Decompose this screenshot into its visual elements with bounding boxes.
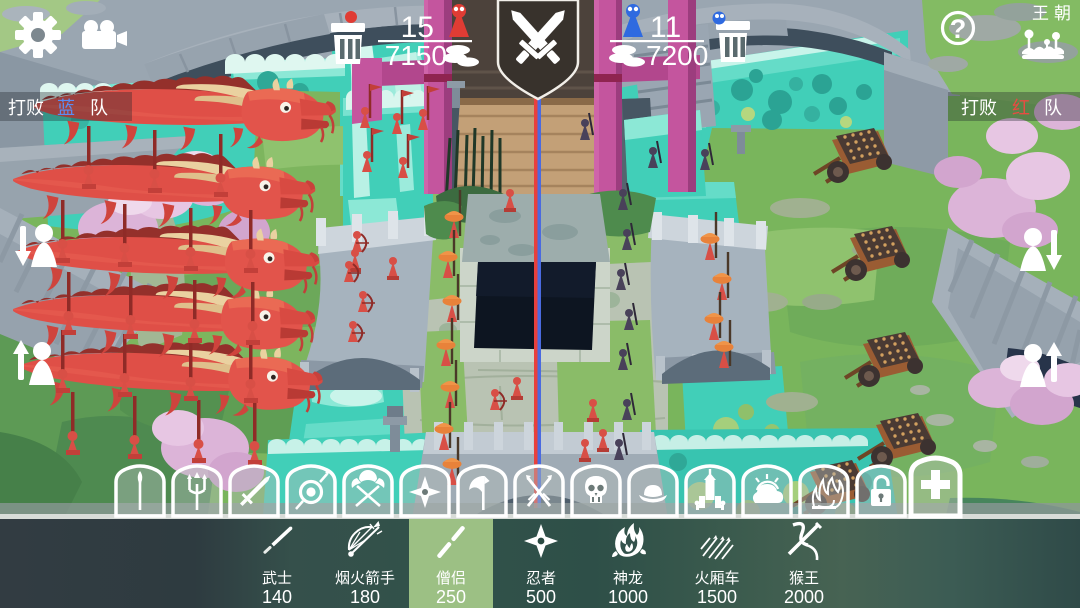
svg-text:140: 140 (262, 587, 292, 607)
svg-text:王朝: 王朝 (1032, 4, 1076, 23)
svg-text:队: 队 (90, 98, 108, 118)
svg-text:烟火箭手: 烟火箭手 (335, 569, 395, 587)
svg-text:2000: 2000 (784, 587, 824, 607)
svg-text:神龙: 神龙 (613, 570, 643, 587)
svg-text:忍者: 忍者 (526, 570, 556, 587)
svg-text:?: ? (950, 14, 967, 44)
svg-text:红: 红 (1012, 98, 1030, 118)
svg-text:打败: 打败 (961, 98, 997, 118)
svg-text:500: 500 (526, 587, 556, 607)
svg-text:猴王: 猴王 (789, 570, 819, 587)
svg-text:武士: 武士 (262, 570, 292, 587)
svg-text:1000: 1000 (608, 587, 648, 607)
svg-text:1500: 1500 (697, 587, 737, 607)
svg-text:队: 队 (1044, 98, 1062, 118)
svg-text:打败: 打败 (8, 98, 44, 118)
svg-text:180: 180 (350, 587, 380, 607)
svg-text:7200: 7200 (646, 40, 708, 71)
svg-text:火厢车: 火厢车 (694, 570, 739, 587)
svg-text:7150: 7150 (385, 40, 447, 71)
svg-text:僧侣: 僧侣 (436, 570, 466, 587)
svg-text:250: 250 (436, 587, 466, 607)
svg-text:蓝: 蓝 (57, 98, 75, 118)
